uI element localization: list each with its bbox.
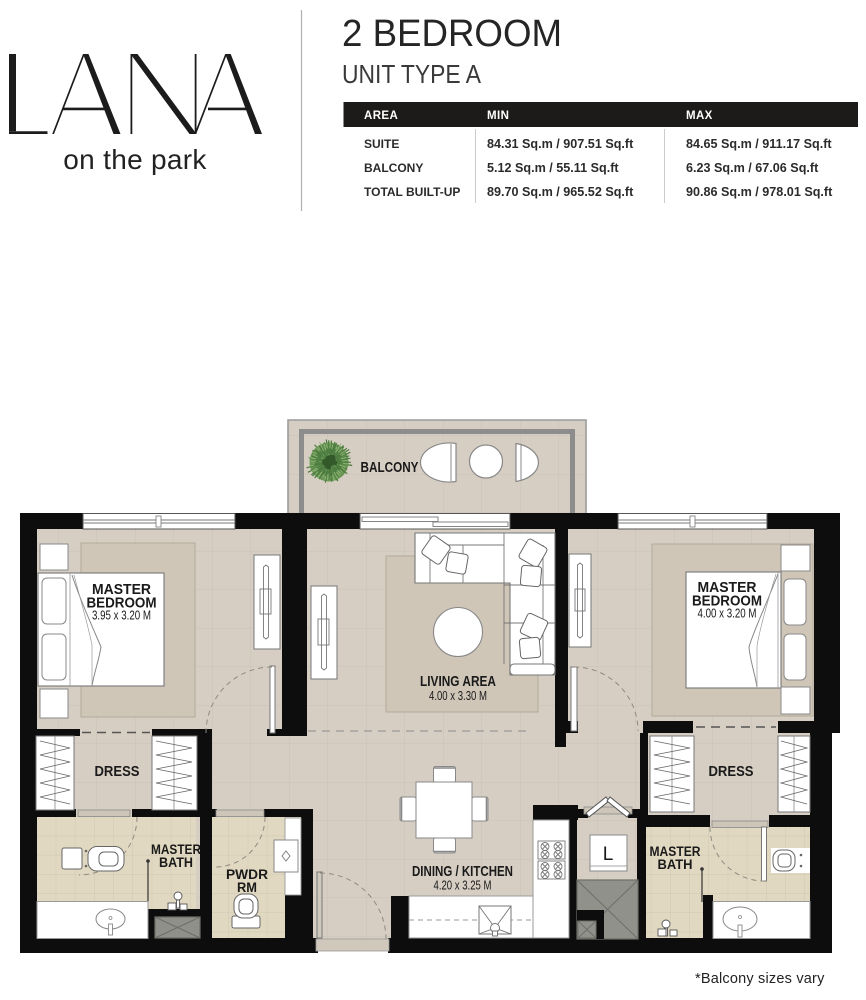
svg-text:MIN: MIN xyxy=(487,110,509,122)
svg-text:84.31 Sq.m / 907.51 Sq.ft: 84.31 Sq.m / 907.51 Sq.ft xyxy=(487,137,634,151)
svg-text:TOTAL BUILT-UP: TOTAL BUILT-UP xyxy=(364,185,460,199)
svg-text:DRESS: DRESS xyxy=(95,764,140,780)
svg-text:2 BEDROOM: 2 BEDROOM xyxy=(342,13,562,55)
svg-text:DRESS: DRESS xyxy=(709,764,754,780)
svg-text:SUITE: SUITE xyxy=(364,137,399,151)
svg-text:DINING / KITCHEN: DINING / KITCHEN xyxy=(412,863,513,880)
svg-text:on the park: on the park xyxy=(63,144,207,175)
svg-text:LIVING AREA: LIVING AREA xyxy=(420,673,496,690)
svg-text:89.70 Sq.m / 965.52 Sq.ft: 89.70 Sq.m / 965.52 Sq.ft xyxy=(487,185,634,199)
svg-text:MAX: MAX xyxy=(686,110,713,122)
svg-text:BALCONY: BALCONY xyxy=(364,161,423,175)
svg-text:BATH: BATH xyxy=(159,855,193,870)
svg-text:*Balcony sizes vary: *Balcony sizes vary xyxy=(695,971,825,987)
svg-text:UNIT TYPE A: UNIT TYPE A xyxy=(342,61,481,89)
svg-text:L: L xyxy=(603,844,614,865)
svg-text:4.20 x 3.25 M: 4.20 x 3.25 M xyxy=(434,879,492,893)
svg-text:RM: RM xyxy=(237,880,257,895)
svg-text:5.12 Sq.m / 55.11 Sq.ft: 5.12 Sq.m / 55.11 Sq.ft xyxy=(487,161,619,175)
svg-text:84.65 Sq.m / 911.17 Sq.ft: 84.65 Sq.m / 911.17 Sq.ft xyxy=(686,137,832,151)
svg-text:AREA: AREA xyxy=(364,110,398,122)
svg-text:BALCONY: BALCONY xyxy=(361,460,419,476)
svg-text:6.23 Sq.m / 67.06 Sq.ft: 6.23 Sq.m / 67.06 Sq.ft xyxy=(686,161,819,175)
svg-text:90.86 Sq.m / 978.01 Sq.ft: 90.86 Sq.m / 978.01 Sq.ft xyxy=(686,185,833,199)
svg-text:BATH: BATH xyxy=(658,857,693,872)
svg-text:4.00 x 3.20 M: 4.00 x 3.20 M xyxy=(698,607,757,621)
svg-text:4.00 x 3.30 M: 4.00 x 3.30 M xyxy=(429,689,487,703)
svg-text:3.95 x 3.20 M: 3.95 x 3.20 M xyxy=(92,609,151,623)
